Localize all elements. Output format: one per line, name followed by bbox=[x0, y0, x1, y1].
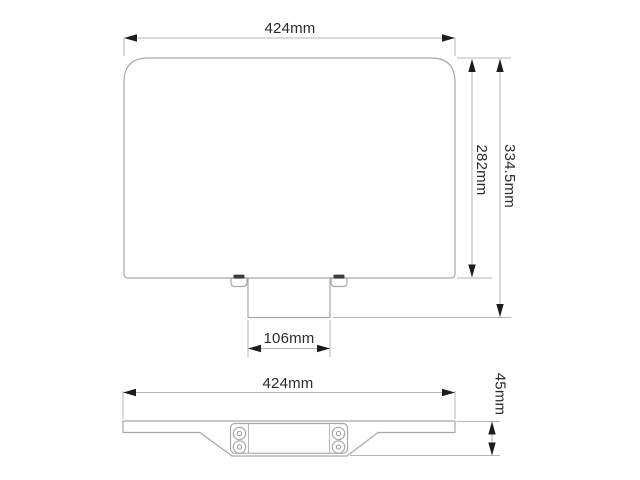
front-view: 424mm 282mm 334.5mm bbox=[124, 20, 518, 357]
arrowhead-right bbox=[317, 345, 330, 352]
arrowhead-up bbox=[488, 422, 495, 435]
dim-panel-height-label: 282mm bbox=[473, 144, 490, 195]
arrowhead-right bbox=[442, 34, 455, 41]
screw-hole-center bbox=[336, 431, 340, 435]
clip-slot bbox=[334, 275, 345, 279]
mount-bracket-front bbox=[248, 278, 330, 318]
arrowhead-down bbox=[496, 304, 503, 317]
screw-hole-center bbox=[237, 445, 241, 449]
dim-bracket-width-label: 106mm bbox=[263, 330, 314, 347]
shelf-front-outline bbox=[124, 58, 455, 278]
dim-bottom-width-label: 424mm bbox=[262, 375, 313, 392]
screw-hole-center bbox=[336, 445, 340, 449]
dim-depth-label: 45mm bbox=[492, 373, 509, 415]
dimension-drawing: 424mm 282mm 334.5mm bbox=[0, 0, 640, 480]
bottom-view: 424mm 45mm bbox=[123, 373, 509, 456]
arrowhead-down bbox=[468, 265, 475, 278]
clip-body bbox=[231, 278, 247, 286]
arrowhead-left bbox=[124, 34, 137, 41]
arrowhead-left bbox=[123, 389, 136, 396]
arrowhead-down bbox=[488, 443, 495, 456]
arrowhead-left bbox=[248, 345, 261, 352]
screw-hole-center bbox=[237, 431, 241, 435]
drawing-canvas: 424mm 282mm 334.5mm bbox=[0, 0, 640, 480]
clip-body bbox=[331, 278, 347, 286]
dim-total-height-label: 334.5mm bbox=[501, 144, 518, 208]
dim-front-width-label: 424mm bbox=[264, 20, 315, 37]
dim-front-width: 424mm bbox=[124, 20, 455, 56]
arrowhead-up bbox=[496, 59, 503, 72]
clip-slot bbox=[234, 275, 245, 279]
arrowhead-right bbox=[442, 389, 455, 396]
dim-bracket-width: 106mm bbox=[248, 320, 330, 357]
dim-depth: 45mm bbox=[350, 373, 509, 456]
arrowhead-up bbox=[468, 59, 475, 72]
dim-bottom-width: 424mm bbox=[123, 375, 455, 419]
